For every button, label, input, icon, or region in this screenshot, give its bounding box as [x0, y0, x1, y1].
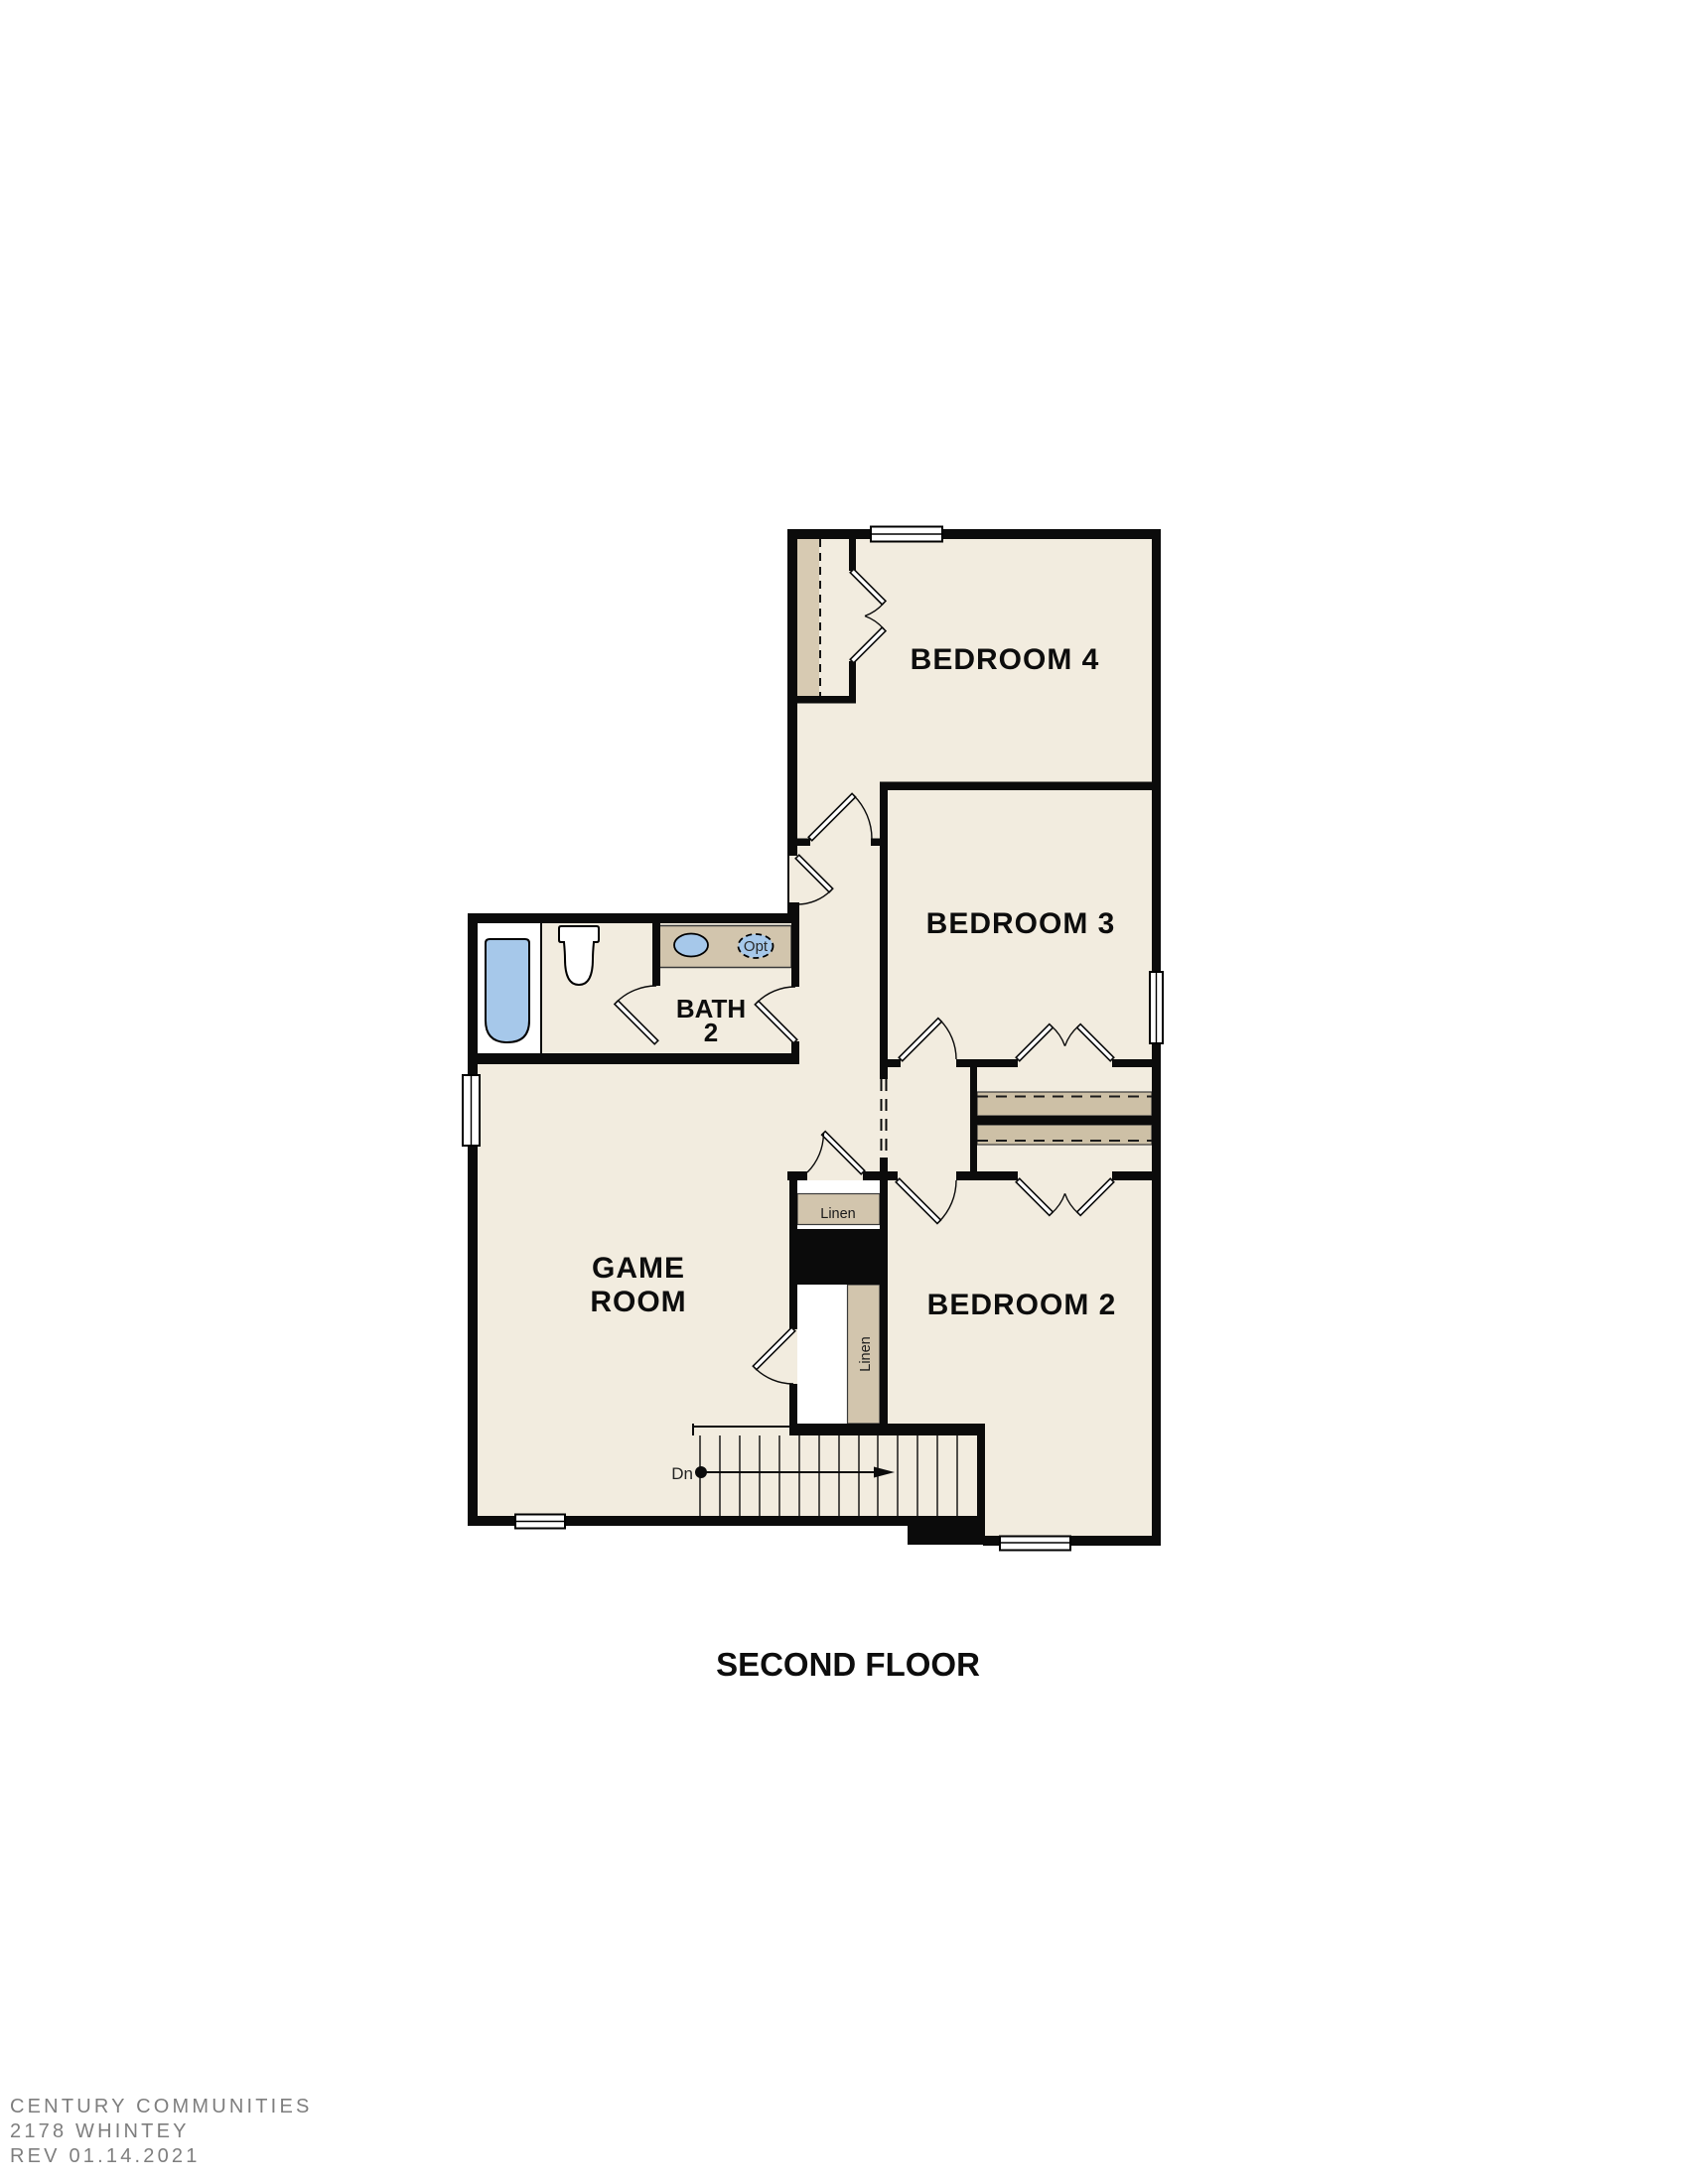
svg-text:2178 WHINTEY: 2178 WHINTEY	[10, 2120, 190, 2142]
svg-text:2: 2	[704, 1018, 718, 1047]
svg-text:SECOND FLOOR: SECOND FLOOR	[716, 1646, 980, 1683]
svg-text:BEDROOM 2: BEDROOM 2	[927, 1289, 1117, 1321]
svg-text:Opt: Opt	[744, 938, 769, 955]
svg-text:Linen: Linen	[820, 1206, 855, 1222]
svg-text:GAME: GAME	[592, 1252, 685, 1285]
svg-text:ROOM: ROOM	[590, 1286, 686, 1318]
svg-text:Dn: Dn	[671, 1464, 693, 1483]
svg-text:BEDROOM 4: BEDROOM 4	[911, 643, 1100, 676]
svg-text:CENTURY COMMUNITIES: CENTURY COMMUNITIES	[10, 2096, 313, 2117]
svg-text:BEDROOM 3: BEDROOM 3	[926, 907, 1116, 940]
svg-text:Linen: Linen	[858, 1336, 874, 1371]
svg-text:REV 01.14.2021: REV 01.14.2021	[10, 2145, 201, 2167]
